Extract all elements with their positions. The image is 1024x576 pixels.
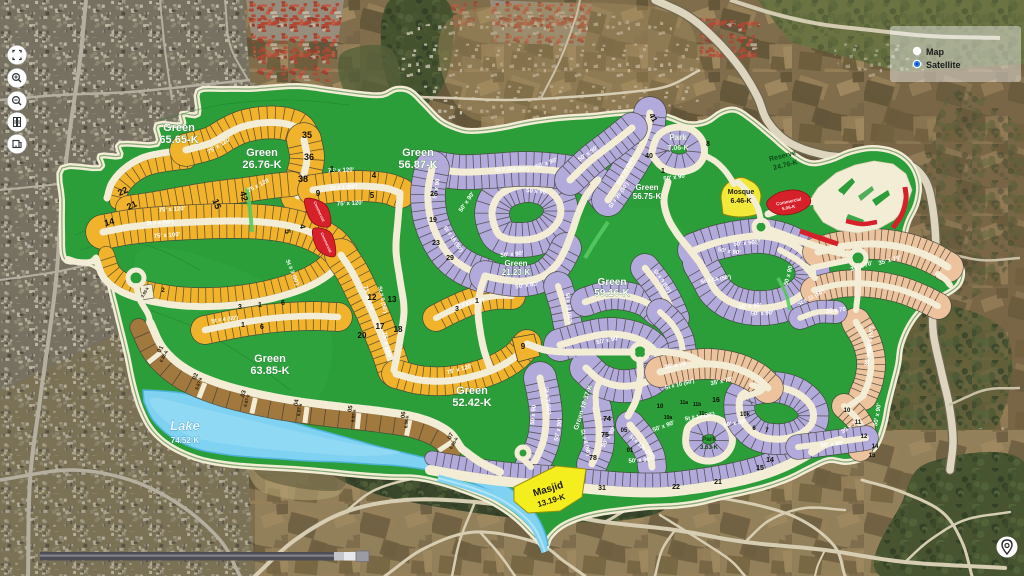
svg-text:40: 40 <box>645 153 653 160</box>
svg-text:3.63-K: 3.63-K <box>700 445 719 451</box>
svg-text:78: 78 <box>589 455 597 462</box>
svg-text:Green: Green <box>635 183 658 192</box>
svg-text:56.75-K: 56.75-K <box>633 192 662 201</box>
svg-text:Park: Park <box>669 133 687 142</box>
svg-text:56.87-K: 56.87-K <box>398 159 437 171</box>
svg-text:St # 20A (50'): St # 20A (50') <box>495 166 529 173</box>
svg-text:3: 3 <box>455 306 459 313</box>
svg-text:Green: Green <box>246 147 278 159</box>
svg-text:10a: 10a <box>664 415 673 421</box>
svg-text:5: 5 <box>370 191 375 200</box>
svg-text:9: 9 <box>316 189 321 198</box>
svg-text:8: 8 <box>706 141 710 148</box>
svg-text:11c: 11c <box>699 411 707 417</box>
svg-text:38: 38 <box>298 174 308 184</box>
svg-text:16: 16 <box>712 397 720 404</box>
svg-text:11: 11 <box>855 420 862 426</box>
svg-text:15: 15 <box>756 465 764 472</box>
svg-text:Map: Map <box>926 47 945 57</box>
svg-text:17: 17 <box>376 322 385 331</box>
svg-text:10: 10 <box>657 404 664 410</box>
svg-text:15: 15 <box>869 453 876 459</box>
svg-text:22: 22 <box>672 484 680 491</box>
svg-text:50' x 90': 50' x 90' <box>750 310 774 317</box>
svg-text:Green: Green <box>254 353 286 365</box>
svg-text:05: 05 <box>621 428 628 434</box>
svg-text:1: 1 <box>475 298 479 305</box>
svg-text:74.52-K: 74.52-K <box>171 436 200 445</box>
svg-text:12: 12 <box>368 293 377 302</box>
svg-text:31: 31 <box>598 485 606 492</box>
svg-text:Park: Park <box>702 436 716 443</box>
svg-text:18: 18 <box>394 325 403 334</box>
svg-text:26.76-K: 26.76-K <box>242 159 281 171</box>
svg-text:7.06-K: 7.06-K <box>667 145 688 152</box>
svg-text:Green: Green <box>504 259 527 268</box>
svg-text:21: 21 <box>714 479 722 486</box>
svg-text:14: 14 <box>766 457 774 464</box>
svg-text:4: 4 <box>372 171 377 180</box>
svg-text:1: 1 <box>241 322 245 329</box>
svg-text:Mosque: Mosque <box>728 189 755 196</box>
svg-text:19: 19 <box>429 217 437 224</box>
svg-text:63.85-K: 63.85-K <box>250 365 289 377</box>
svg-text:11b: 11b <box>693 402 701 408</box>
svg-text:1: 1 <box>330 165 335 174</box>
svg-text:01: 01 <box>627 448 634 454</box>
svg-text:6: 6 <box>281 300 285 307</box>
svg-text:75: 75 <box>601 432 609 439</box>
svg-text:10k: 10k <box>740 412 751 418</box>
svg-text:74: 74 <box>603 416 611 423</box>
svg-text:3: 3 <box>238 304 242 311</box>
svg-text:Green: Green <box>598 277 627 288</box>
svg-text:12: 12 <box>861 434 868 440</box>
svg-text:6: 6 <box>260 324 264 331</box>
svg-text:Green: Green <box>163 122 195 134</box>
svg-text:Green: Green <box>402 147 434 159</box>
svg-text:1: 1 <box>661 168 665 175</box>
svg-text:65.65-K: 65.65-K <box>159 134 198 146</box>
svg-text:59.16-K: 59.16-K <box>594 288 630 299</box>
svg-text:26: 26 <box>430 191 438 198</box>
svg-text:36: 36 <box>304 152 314 162</box>
svg-text:6.46-K: 6.46-K <box>730 198 751 205</box>
svg-text:14: 14 <box>872 444 879 450</box>
svg-text:21.23-K: 21.23-K <box>502 268 531 277</box>
svg-text:35: 35 <box>302 130 312 140</box>
svg-text:Satellite: Satellite <box>926 60 961 70</box>
svg-text:20: 20 <box>358 331 367 340</box>
svg-text:Green: Green <box>456 385 488 397</box>
svg-text:Lake: Lake <box>170 418 200 433</box>
svg-text:10: 10 <box>844 408 851 414</box>
svg-text:1: 1 <box>258 302 262 309</box>
svg-text:9: 9 <box>521 342 526 351</box>
svg-text:13: 13 <box>388 295 397 304</box>
svg-text:11a: 11a <box>680 400 688 406</box>
svg-text:29: 29 <box>446 255 454 262</box>
svg-text:23: 23 <box>432 240 440 247</box>
svg-text:52.42-K: 52.42-K <box>452 397 491 409</box>
